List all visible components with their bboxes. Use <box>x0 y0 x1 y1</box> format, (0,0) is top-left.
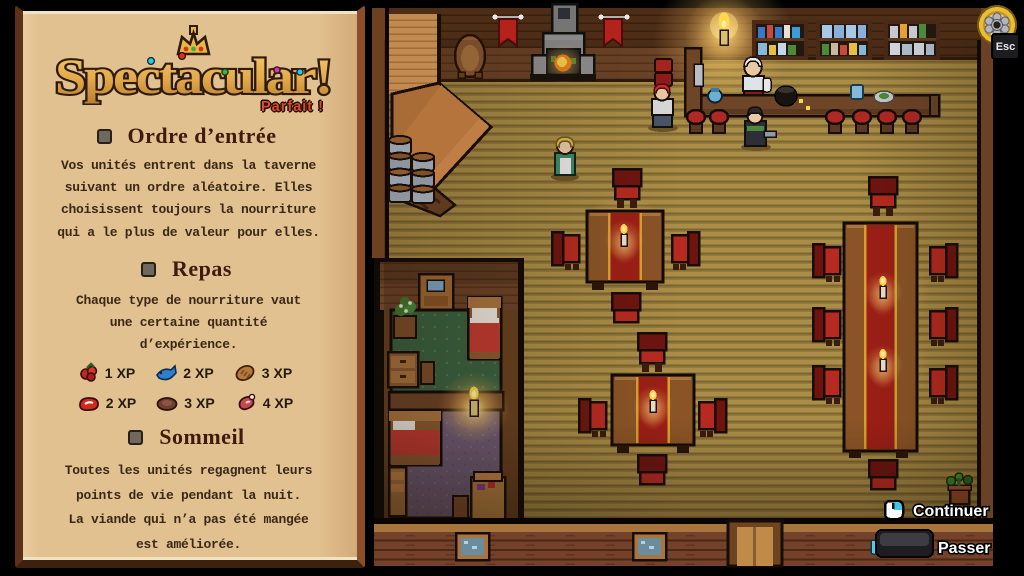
svg-text:Continuer: Continuer <box>913 503 989 520</box>
svg-text:Esc: Esc <box>996 41 1016 53</box>
svg-text:Passer: Passer <box>938 540 991 557</box>
svg-text:Spectacular!: Spectacular! <box>55 48 331 104</box>
